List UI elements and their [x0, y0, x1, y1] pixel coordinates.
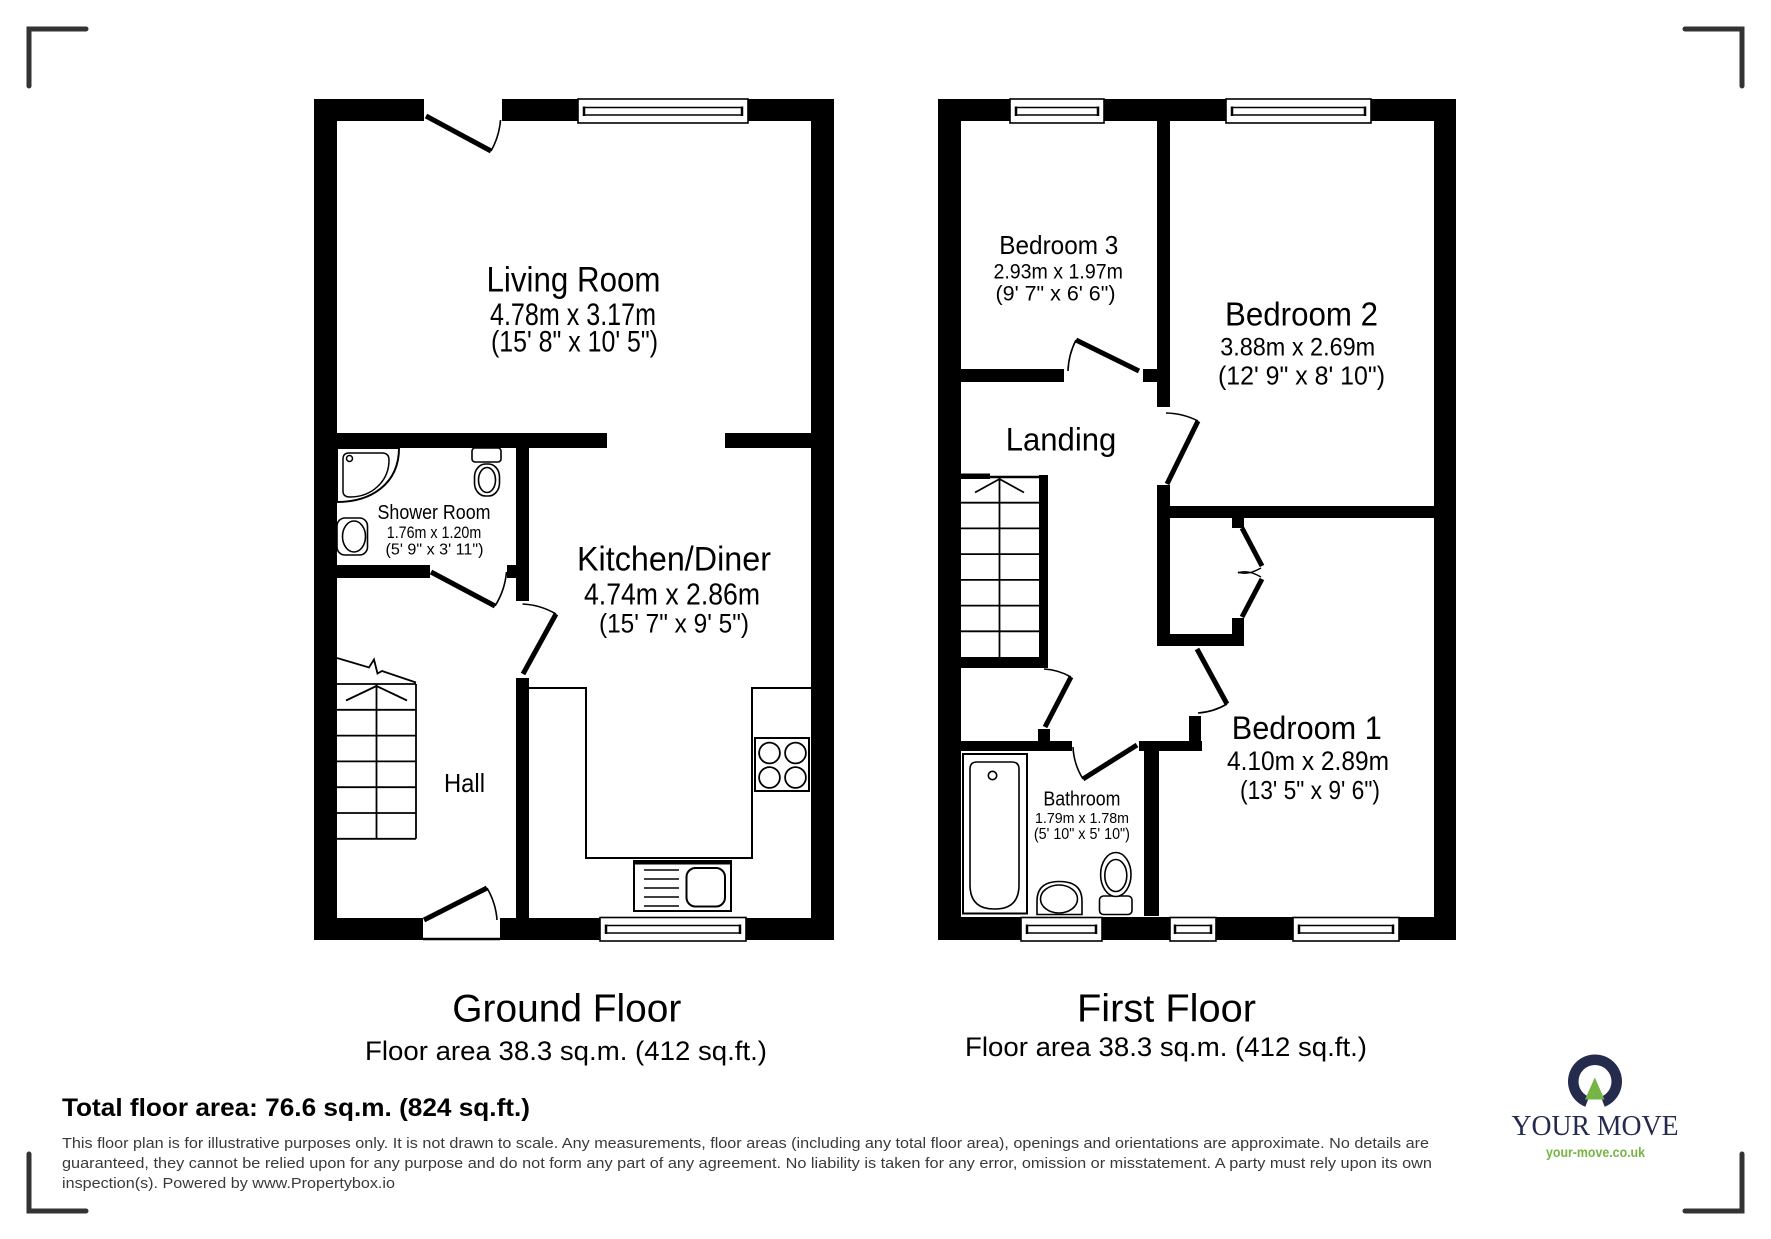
svg-text:2.93m x 1.97m: 2.93m x 1.97m — [993, 260, 1123, 283]
svg-text:This floor plan is for illustr: This floor plan is for illustrative purp… — [62, 1136, 1429, 1152]
svg-text:3.88m x 2.69m: 3.88m x 2.69m — [1220, 333, 1375, 361]
svg-text:YOUR MOVE: YOUR MOVE — [1512, 1110, 1679, 1142]
svg-text:1.79m x 1.78m: 1.79m x 1.78m — [1035, 810, 1129, 827]
svg-text:Hall: Hall — [444, 768, 485, 798]
svg-text:your-move.co.uk: your-move.co.uk — [1546, 1144, 1645, 1160]
svg-text:Floor area 38.3 sq.m. (412 sq.: Floor area 38.3 sq.m. (412 sq.ft.) — [965, 1032, 1367, 1062]
svg-text:Floor area 38.3 sq.m. (412 sq.: Floor area 38.3 sq.m. (412 sq.ft.) — [365, 1036, 767, 1066]
svg-text:First Floor: First Floor — [1077, 988, 1256, 1031]
svg-text:Shower Room: Shower Room — [378, 501, 491, 524]
svg-text:Total floor area: 76.6 sq.m. (: Total floor area: 76.6 sq.m. (824 sq.ft.… — [62, 1094, 530, 1122]
svg-text:Ground Floor: Ground Floor — [452, 988, 681, 1031]
svg-text:guaranteed, they cannot be rel: guaranteed, they cannot be relied upon f… — [62, 1156, 1432, 1172]
svg-text:(9' 7" x 6' 6"): (9' 7" x 6' 6") — [996, 283, 1116, 306]
svg-text:Bedroom 3: Bedroom 3 — [999, 232, 1118, 260]
svg-text:Bathroom: Bathroom — [1043, 787, 1120, 810]
svg-text:(15' 7" x 9' 5"): (15' 7" x 9' 5") — [599, 609, 749, 639]
svg-text:(13' 5" x 9' 6"): (13' 5" x 9' 6") — [1240, 775, 1380, 805]
svg-text:(15' 8" x 10' 5"): (15' 8" x 10' 5") — [491, 326, 658, 359]
svg-text:inspection(s). Powered by www.: inspection(s). Powered by www.Propertybo… — [62, 1176, 395, 1192]
svg-text:1.76m x 1.20m: 1.76m x 1.20m — [387, 524, 482, 542]
svg-text:Bedroom 2: Bedroom 2 — [1225, 296, 1378, 333]
svg-text:4.10m x 2.89m: 4.10m x 2.89m — [1227, 746, 1389, 776]
svg-text:(5' 10" x 5' 10"): (5' 10" x 5' 10") — [1034, 826, 1130, 843]
svg-text:Landing: Landing — [1006, 420, 1117, 457]
svg-text:(5' 9" x 3' 11"): (5' 9" x 3' 11") — [386, 542, 484, 559]
svg-text:Living Room: Living Room — [487, 261, 661, 300]
svg-text:4.74m x 2.86m: 4.74m x 2.86m — [584, 577, 760, 612]
svg-text:(12' 9" x 8' 10"): (12' 9" x 8' 10") — [1218, 363, 1385, 391]
svg-text:Kitchen/Diner: Kitchen/Diner — [577, 541, 771, 579]
svg-text:Bedroom 1: Bedroom 1 — [1232, 709, 1382, 746]
